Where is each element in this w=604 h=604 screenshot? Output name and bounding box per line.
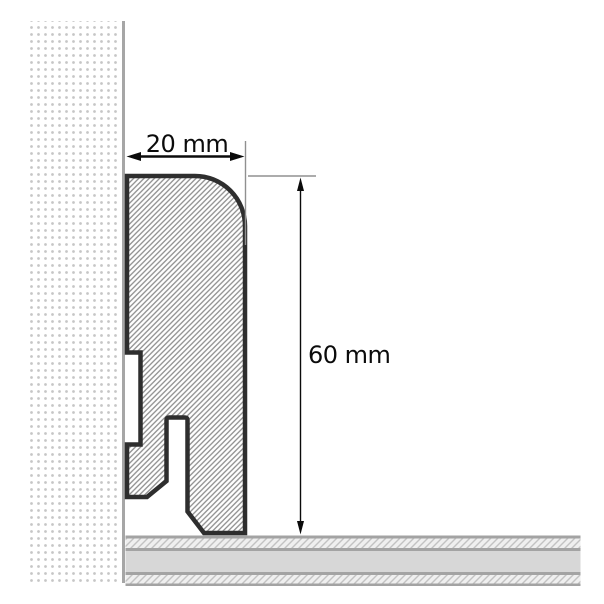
floor-hatch-band-lower [126, 575, 581, 584]
skirting-profile-outline [127, 176, 245, 533]
diagram-canvas: 20 mm 60 mm [0, 0, 604, 604]
cross-section-drawing: 20 mm 60 mm [0, 0, 604, 604]
arrowhead-left-icon [127, 152, 142, 161]
floor-border-top [126, 536, 581, 539]
dimension-height: 60 mm [248, 176, 390, 535]
floor-border-mid-upper [126, 548, 581, 551]
floor [126, 536, 581, 587]
height-dimension-label: 60 mm [308, 341, 390, 369]
floor-border-mid-lower [126, 572, 581, 575]
arrowhead-down-icon [297, 521, 304, 535]
arrowhead-up-icon [297, 178, 304, 192]
arrowhead-right-icon [230, 152, 245, 161]
width-dimension-label: 20 mm [146, 130, 228, 158]
floor-border-bottom [126, 584, 581, 587]
floor-core-band [126, 551, 581, 572]
floor-hatch-band-upper [126, 539, 581, 549]
